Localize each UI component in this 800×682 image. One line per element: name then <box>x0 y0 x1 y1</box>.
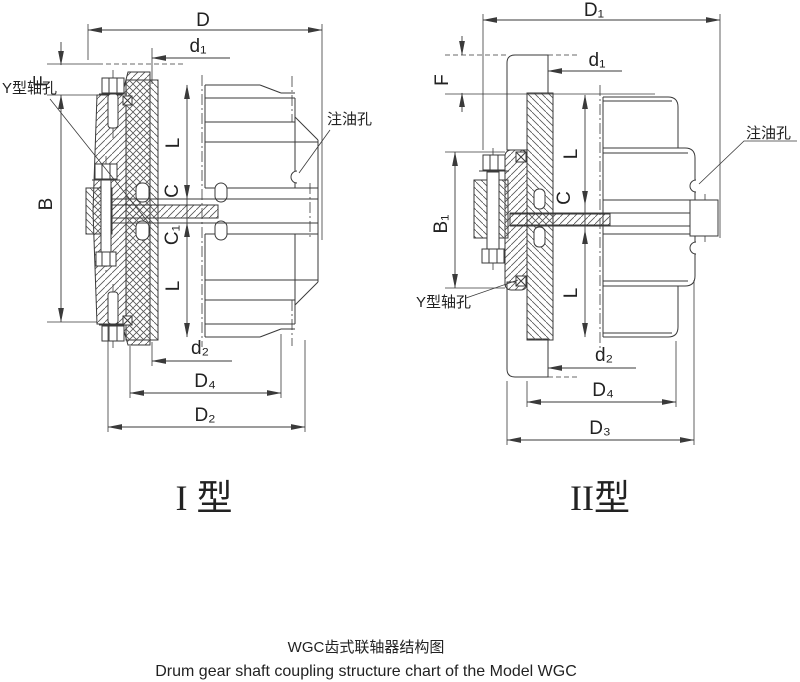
dim-label-d2: d₂ <box>191 338 209 359</box>
dim-label-D3: D₃ <box>589 418 610 439</box>
type1-caption: I 型 <box>176 478 233 518</box>
type1-view <box>47 24 330 432</box>
dim-label-B1: B₁ <box>431 214 452 233</box>
note-y-shaft-hole: Y型轴孔 <box>2 80 57 97</box>
type1-oil-hole <box>291 171 297 183</box>
type2-oil-hole-lower <box>690 242 696 254</box>
note-oil-hole-2: 注油孔 <box>746 125 791 142</box>
type2-caption: II型 <box>570 478 630 518</box>
dim-label-d1: d₁ <box>190 36 207 57</box>
dim-label-C: C <box>162 184 183 198</box>
dim-label-B: B <box>36 198 57 211</box>
dim-label-d2-2: d₂ <box>595 345 613 366</box>
dim-label-L-top-2: L <box>561 149 582 160</box>
type2-drum-sleeve <box>603 97 695 337</box>
dim-label-D2: D₂ <box>194 405 215 426</box>
note-oil-hole: 注油孔 <box>327 111 372 128</box>
type2-oil-hole <box>690 180 696 192</box>
type1-drum-sleeve <box>205 85 318 337</box>
type2-view <box>445 14 797 445</box>
drawing-title-english: Drum gear shaft coupling structure chart… <box>155 663 577 680</box>
dim-label-L-bottom: L <box>163 281 184 292</box>
dim-label-C-2: C <box>554 191 575 205</box>
dim-label-L-bottom-2: L <box>561 288 582 299</box>
note-y-shaft-hole-2: Y型轴孔 <box>416 294 471 311</box>
engineering-drawing-page: D d₁ F B L C C₁ L d₂ D₄ D₂ Y型轴孔 注油孔 I 型 <box>0 0 800 682</box>
drawing-title-chinese: WGC齿式联轴器结构图 <box>288 639 445 656</box>
coupling-structure-diagram: D d₁ F B L C C₁ L d₂ D₄ D₂ Y型轴孔 注油孔 I 型 <box>0 0 800 682</box>
dim-label-F-2: F <box>432 74 453 86</box>
drawing-titles: WGC齿式联轴器结构图 Drum gear shaft coupling str… <box>155 639 577 680</box>
dim-label-L-top: L <box>163 138 184 149</box>
dim-label-d1-2: d₁ <box>589 50 606 71</box>
dim-label-D1: D₁ <box>584 0 604 21</box>
dim-label-D4-2: D₄ <box>592 380 614 401</box>
dim-label-D: D <box>196 10 210 31</box>
dim-label-D4: D₄ <box>194 371 216 392</box>
dim-label-C1: C₁ <box>162 225 183 245</box>
